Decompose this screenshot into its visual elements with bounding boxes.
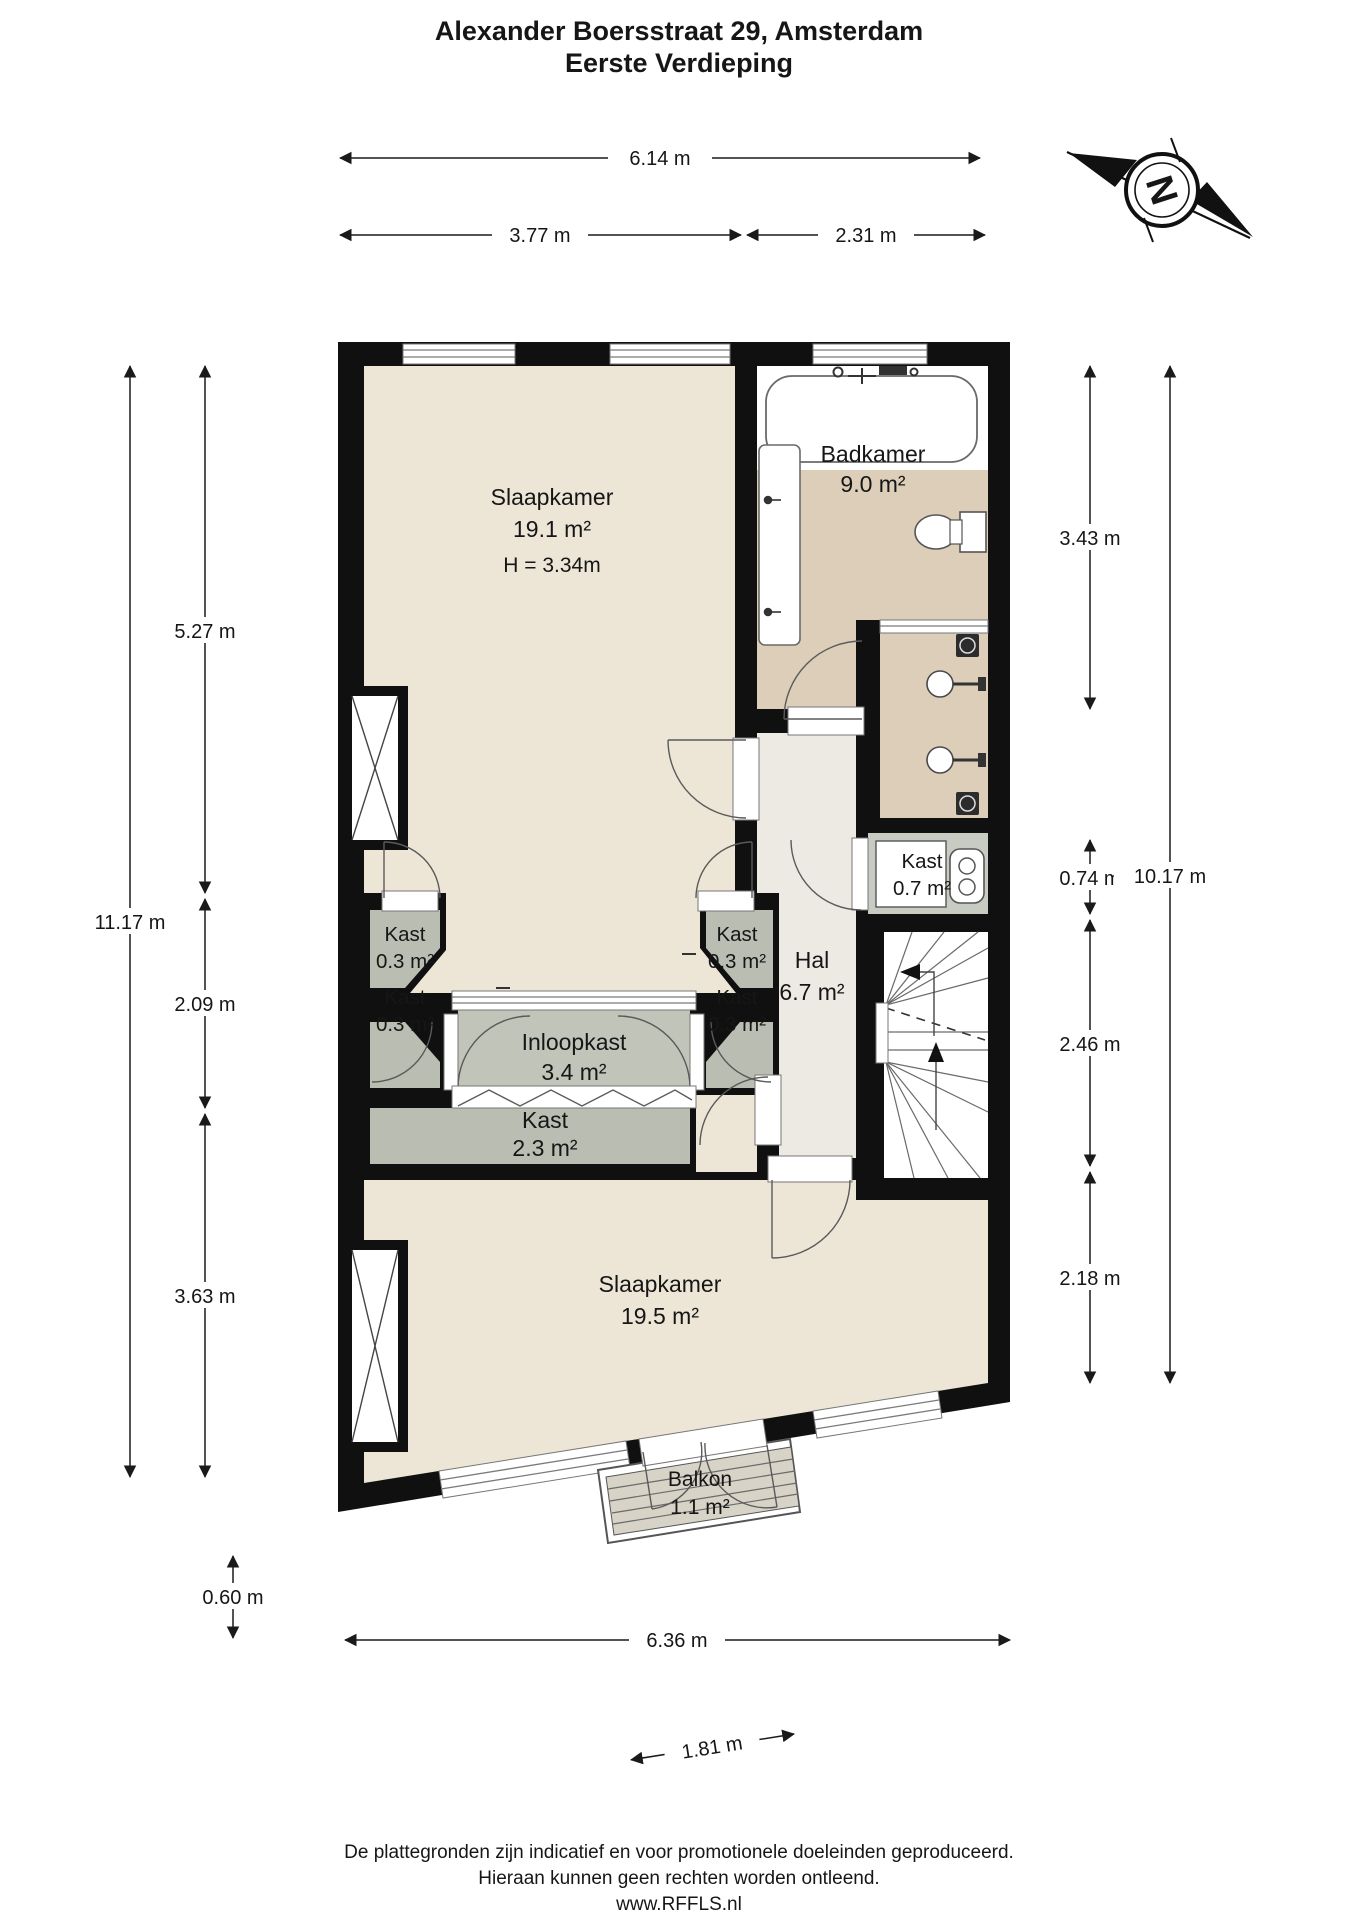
label-inloopkast-name: Inloopkast [522, 1029, 627, 1055]
label-kast07-name: Kast [901, 850, 942, 873]
dim-top-left: 3.77 m [509, 225, 570, 247]
label-kast-tr-area: 0.3 m² [708, 950, 766, 973]
compass-icon: N [1067, 138, 1253, 242]
label-kast-tl-name: Kast [384, 923, 425, 946]
shower-partition [880, 620, 988, 633]
label-slaapkamer1-area: 19.1 m² [513, 516, 591, 542]
dim-right-seg1: 3.43 m [1059, 528, 1120, 550]
label-kast23-area: 2.3 m² [512, 1135, 578, 1161]
dim-right-seg3: 2.46 m [1059, 1034, 1120, 1056]
label-kast-tr-name: Kast [716, 923, 757, 946]
stairs-icon [876, 932, 988, 1178]
label-slaapkamer1-height: H = 3.34m [503, 554, 600, 577]
dim-right-seg4: 2.18 m [1059, 1268, 1120, 1290]
label-kast23-name: Kast [522, 1107, 569, 1133]
floorplan-canvas: Alexander Boersstraat 29, Amsterdam Eers… [0, 0, 1358, 1920]
page-title-line2: Eerste Verdieping [565, 48, 793, 78]
footer-disclaimer-line1: De plattegronden zijn indicatief en voor… [344, 1842, 1014, 1863]
label-balkon-area: 1.1 m² [670, 1496, 730, 1519]
dim-right-total: 10.17 m [1134, 866, 1206, 888]
label-inloopkast-area: 3.4 m² [541, 1059, 607, 1085]
label-badkamer-name: Badkamer [821, 441, 926, 467]
label-slaapkamer1-name: Slaapkamer [491, 484, 614, 510]
label-kast07-area: 0.7 m² [893, 877, 951, 900]
dim-left-seg1: 5.27 m [174, 621, 235, 643]
shower-strip-floor [880, 632, 988, 818]
dim-left-seg3: 3.63 m [174, 1286, 235, 1308]
label-slaapkamer2-area: 19.5 m² [621, 1303, 699, 1329]
kast-07 [868, 833, 988, 914]
dim-balcony-depth: 0.60 m [202, 1587, 263, 1609]
washbasin-icon [759, 445, 800, 645]
dim-left-seg2: 2.09 m [174, 994, 235, 1016]
window-top [403, 344, 927, 364]
dim-left-total: 11.17 m [95, 912, 166, 934]
dim-right-seg2: 0.74 m [1059, 868, 1120, 890]
dim-top-right: 2.31 m [835, 225, 896, 247]
label-kast-l2-name: Kast [384, 986, 425, 1009]
page-title-line1: Alexander Boersstraat 29, Amsterdam [435, 16, 923, 46]
label-hal-area: 6.7 m² [779, 979, 845, 1005]
footer-website: www.RFFLS.nl [615, 1894, 742, 1915]
dim-top-total: 6.14 m [629, 148, 690, 170]
label-hal-name: Hal [795, 947, 830, 973]
boiler-icon [950, 849, 984, 903]
label-slaapkamer2-name: Slaapkamer [599, 1271, 722, 1297]
label-kast-r2-name: Kast [716, 986, 757, 1009]
building-outline [338, 342, 1010, 1543]
label-kast-l2-area: 0.3 m² [376, 1013, 434, 1036]
label-balkon-name: Balkon [668, 1468, 732, 1491]
floorplan-page: Alexander Boersstraat 29, Amsterdam Eers… [0, 0, 1358, 1920]
dim-bottom-total: 6.36 m [646, 1630, 707, 1652]
footer-disclaimer-line2: Hieraan kunnen geen rechten worden ontle… [478, 1868, 879, 1889]
label-kast-r2-area: 0.3 m² [708, 1013, 766, 1036]
label-kast-tl-area: 0.3 m² [376, 950, 434, 973]
label-badkamer-area: 9.0 m² [840, 471, 906, 497]
